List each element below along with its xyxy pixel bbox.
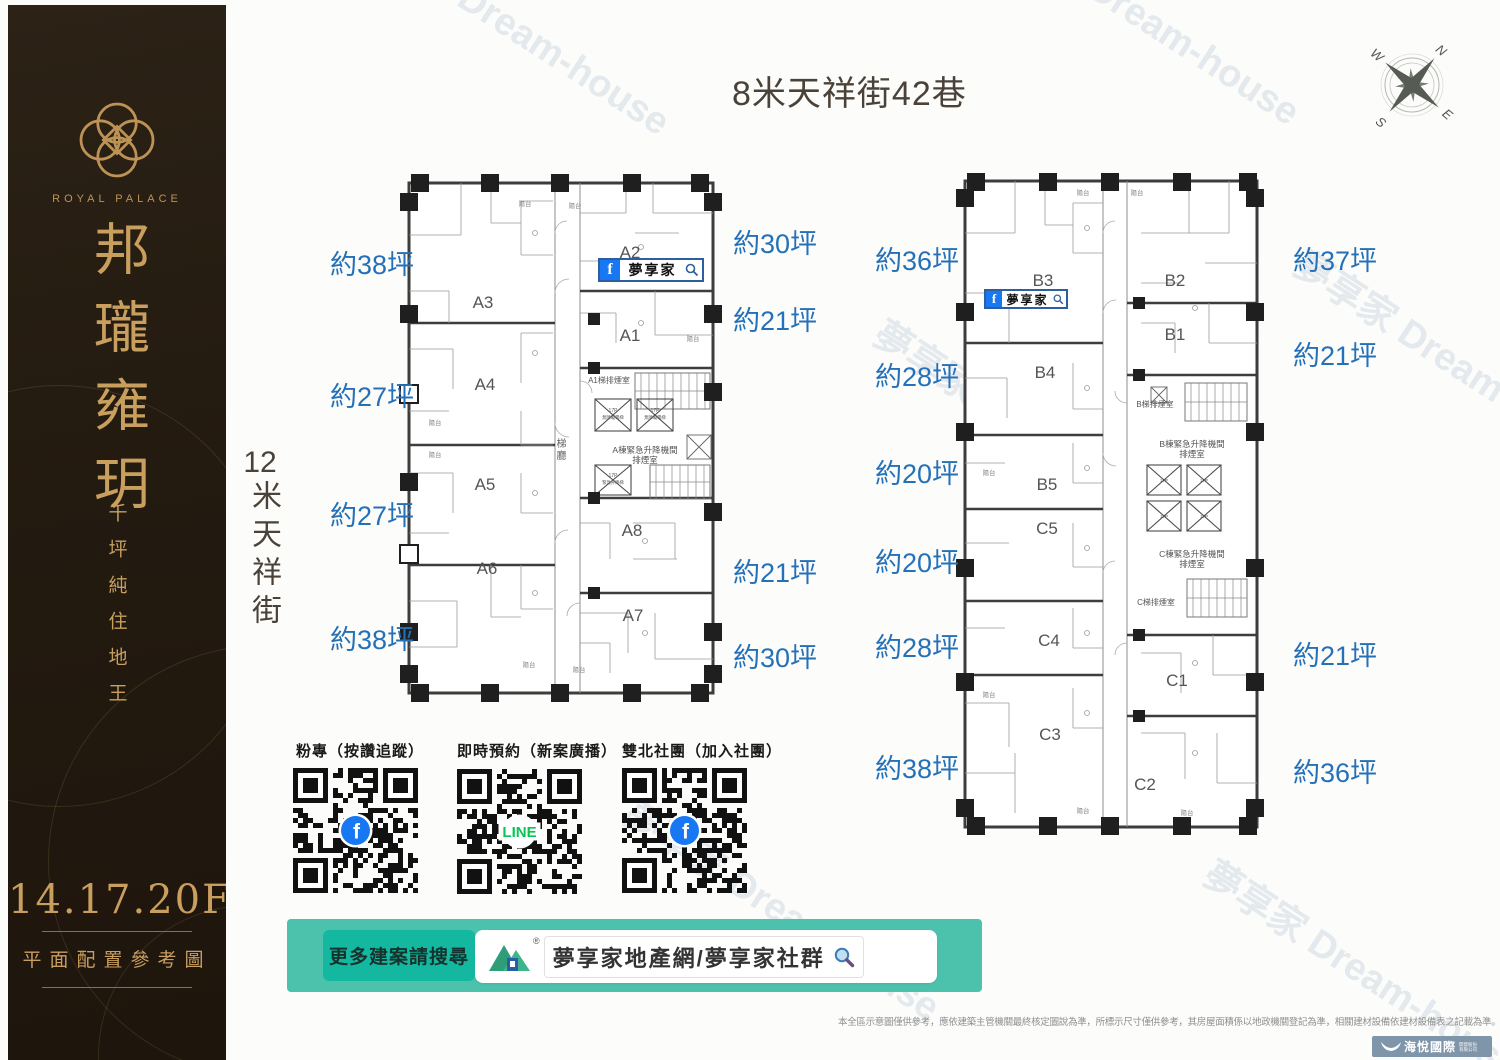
svg-text:LINE: LINE [502, 824, 536, 841]
core-label: B棟緊急升降機間 [1159, 439, 1224, 449]
area-label: 約30坪 [733, 636, 817, 675]
unit-label: A3 [473, 293, 494, 312]
agency-name: 海悅國際 [1404, 1038, 1456, 1055]
unit-label: A5 [475, 475, 496, 494]
area-label: 約38坪 [875, 747, 959, 786]
area-label: 約20坪 [875, 541, 959, 580]
unit-label: C1 [1166, 671, 1188, 690]
floor-plan-bc-tower: B3 B2 B1 B4 B5 C5 C4 C3 C1 C2 B梯排煙室 B棟緊急… [955, 173, 1265, 835]
unit-label: A8 [622, 521, 643, 540]
agency-logo: 海悅國際 開發股份 有限公司 [1372, 1036, 1492, 1057]
lift-label: 17P [651, 408, 661, 414]
balcony-label: 陽台 [1131, 188, 1144, 197]
search-brand-pill: ® 夢享家地產網/夢享家社群 [475, 930, 937, 983]
registered-mark: ® [533, 936, 540, 946]
lift-label: 17P [609, 408, 619, 414]
lift-label: 緊急升降梯 [602, 479, 624, 486]
unit-label: A1 [620, 326, 641, 345]
unit-label: B1 [1165, 325, 1186, 344]
area-label: 約38坪 [330, 618, 414, 657]
unit-label: B4 [1035, 363, 1056, 382]
brand-sidebar: ROYAL PALACE 邦瓏雍玥 千坪純住地王 14.17.20F 平面配置參… [8, 5, 226, 1060]
area-label: 約37坪 [1293, 239, 1377, 278]
elevator-hall-label: 梯廳 [552, 438, 567, 462]
area-label: 約30坪 [733, 222, 817, 261]
core-label: B梯排煙室 [1136, 399, 1173, 409]
magnifier-icon [833, 946, 855, 968]
lift-label: 17P [1200, 514, 1208, 519]
compass-icon: N E S W [1357, 30, 1467, 140]
lift-label: 無障礙電梯 [644, 414, 666, 421]
core-label: C梯排煙室 [1137, 597, 1175, 607]
lift-label: 17P [1160, 514, 1168, 519]
core-label: 排煙室 [1179, 559, 1205, 569]
facebook-badge-label: 夢享家 [620, 260, 685, 280]
qr-label-community: 雙北社團（加入社團） [622, 740, 782, 761]
area-label: 約27坪 [330, 494, 414, 533]
core-label: C棟緊急升降機間 [1159, 549, 1225, 559]
lift-label: 17P [1200, 478, 1208, 483]
core-label: 排煙室 [1179, 449, 1205, 459]
unit-label: A7 [623, 606, 644, 625]
core-label: 排煙室 [632, 455, 658, 465]
unit-label: C3 [1039, 725, 1061, 744]
qr-label-fanpage: 粉專（按讚追蹤） [296, 740, 424, 761]
svg-text:f: f [682, 821, 690, 844]
facebook-icon: f [986, 291, 1002, 307]
area-label: 約21坪 [733, 551, 817, 590]
compass-w: W [1368, 45, 1388, 65]
area-label: 約28坪 [875, 626, 959, 665]
lift-label: 17P [1160, 478, 1168, 483]
unit-label: B2 [1165, 271, 1186, 290]
magnifier-icon [1053, 294, 1064, 305]
facebook-search-badge: f 夢享家 [984, 289, 1068, 309]
qr-label-booking: 即時預約（新案廣播） [457, 740, 617, 761]
disclaimer-text: 本全區示意圖僅供參考，應依建築主管機關最終核定圖說為準，所標示尺寸僅供參考，其房… [838, 1014, 1493, 1028]
unit-label: A4 [475, 375, 496, 394]
area-label: 約36坪 [1293, 751, 1377, 790]
brand-tagline: 千坪純住地王 [104, 503, 131, 719]
balcony-label: 陽台 [429, 450, 442, 459]
lift-label: 無障礙電梯 [602, 414, 624, 421]
flyer-page: 夢享家 Dream-house 夢享家 Dream-house 夢享家 Drea… [0, 0, 1500, 1060]
area-label: 約27坪 [330, 375, 414, 414]
compass-s: S [1373, 114, 1390, 131]
agency-subtext: 開發股份 有限公司 [1459, 1042, 1477, 1052]
unit-label: C5 [1036, 519, 1058, 538]
balcony-label: 陽台 [983, 690, 996, 699]
street-label-left: 12 米天祥街 [241, 448, 279, 632]
plan-subtitle: 平面配置參考圖 [8, 945, 226, 972]
watermark: 夢享家 Dream-house [975, 0, 1313, 136]
divider [42, 931, 192, 932]
area-label: 約21坪 [1293, 634, 1377, 673]
qr-code-facebook-fanpage: f [293, 768, 418, 893]
unit-label: C2 [1134, 775, 1156, 794]
search-prompt: 更多建案請搜尋 [323, 930, 475, 981]
area-label: 約28坪 [875, 355, 959, 394]
smile-icon [1378, 1039, 1404, 1055]
balcony-label: 陽台 [523, 660, 536, 669]
facebook-icon: f [600, 260, 620, 280]
balcony-label: 陽台 [519, 199, 532, 208]
svg-text:f: f [353, 821, 361, 844]
lift-label: 17P [609, 473, 619, 479]
compass-n: N [1433, 41, 1450, 59]
balcony-label: 陽台 [573, 665, 586, 674]
area-label: 約36坪 [875, 239, 959, 278]
area-label: 約20坪 [875, 452, 959, 491]
watermark: 夢享家 Dream-house [345, 0, 683, 146]
core-label: A棟緊急升降機間 [612, 445, 677, 455]
divider [42, 987, 192, 988]
dream-house-logo [487, 937, 533, 977]
brand-english: ROYAL PALACE [8, 193, 226, 205]
area-label: 約38坪 [330, 243, 414, 282]
unit-label: B5 [1037, 475, 1058, 494]
unit-label: C4 [1038, 631, 1060, 650]
street-label-top: 8米天祥街42巷 [732, 66, 967, 115]
balcony-label: 陽台 [1077, 188, 1090, 197]
balcony-label: 陽台 [569, 201, 582, 210]
floors-label: 14.17.20F [8, 877, 226, 923]
area-label: 約21坪 [733, 299, 817, 338]
balcony-label: 陽台 [429, 418, 442, 427]
balcony-label: 陽台 [1181, 808, 1194, 817]
unit-label: B3 [1033, 271, 1054, 290]
brand-search-text: 夢享家地產網/夢享家社群 [553, 941, 825, 973]
core-label: A1梯排煙室 [588, 375, 630, 385]
balcony-label: 陽台 [1077, 806, 1090, 815]
compass-e: E [1439, 106, 1456, 123]
balcony-label: 陽台 [983, 468, 996, 477]
balcony-label: 陽台 [687, 334, 700, 343]
street-left-name: 米天祥街 [241, 480, 285, 632]
qr-code-facebook-community: f [622, 768, 747, 893]
unit-label: A6 [477, 559, 498, 578]
area-label: 約21坪 [1293, 334, 1377, 373]
street-left-number: 12 [241, 448, 279, 478]
facebook-badge-label: 夢享家 [1002, 291, 1053, 308]
brand-name: 邦瓏雍玥 [77, 220, 158, 532]
facebook-search-badge: f 夢享家 [598, 258, 704, 282]
qr-code-line-booking: LINE [457, 769, 582, 894]
search-banner: 更多建案請搜尋 ® 夢享家地產網/夢享家社群 [287, 919, 982, 992]
magnifier-icon [685, 263, 699, 277]
royal-palace-knot-logo [77, 100, 157, 180]
brand-search-box: 夢享家地產網/夢享家社群 [544, 936, 864, 978]
